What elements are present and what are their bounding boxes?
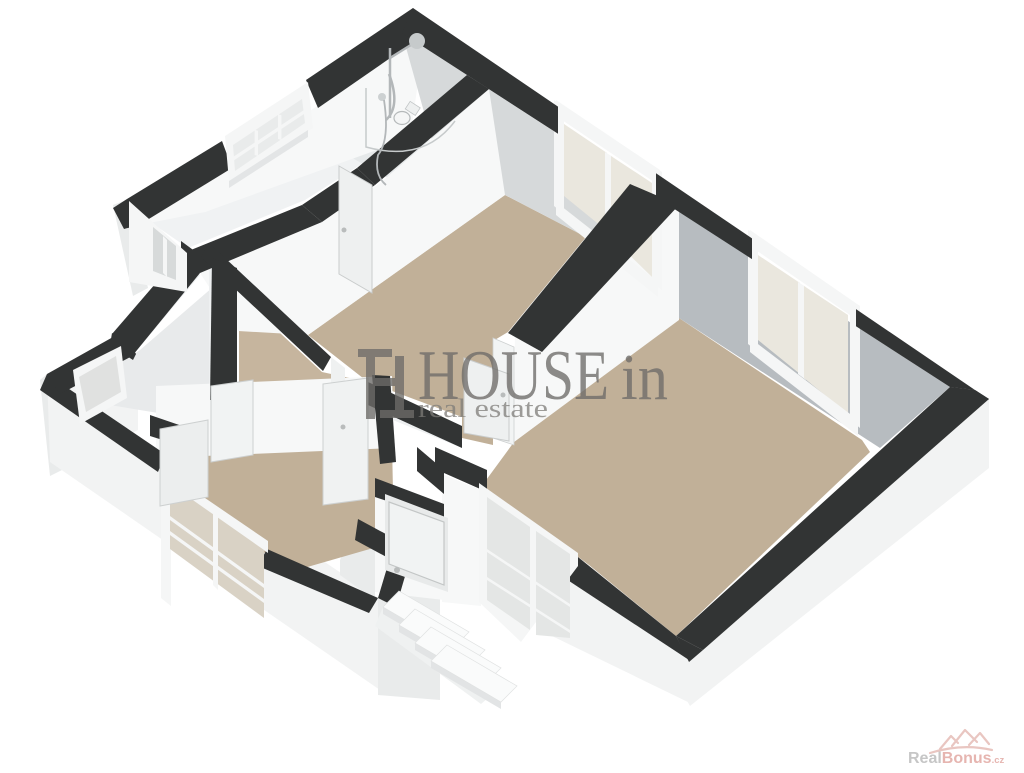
- svg-text:RealBonus.cz: RealBonus.cz: [908, 750, 1005, 767]
- svg-text:real estate: real estate: [418, 394, 548, 423]
- svg-text:in: in: [621, 341, 668, 414]
